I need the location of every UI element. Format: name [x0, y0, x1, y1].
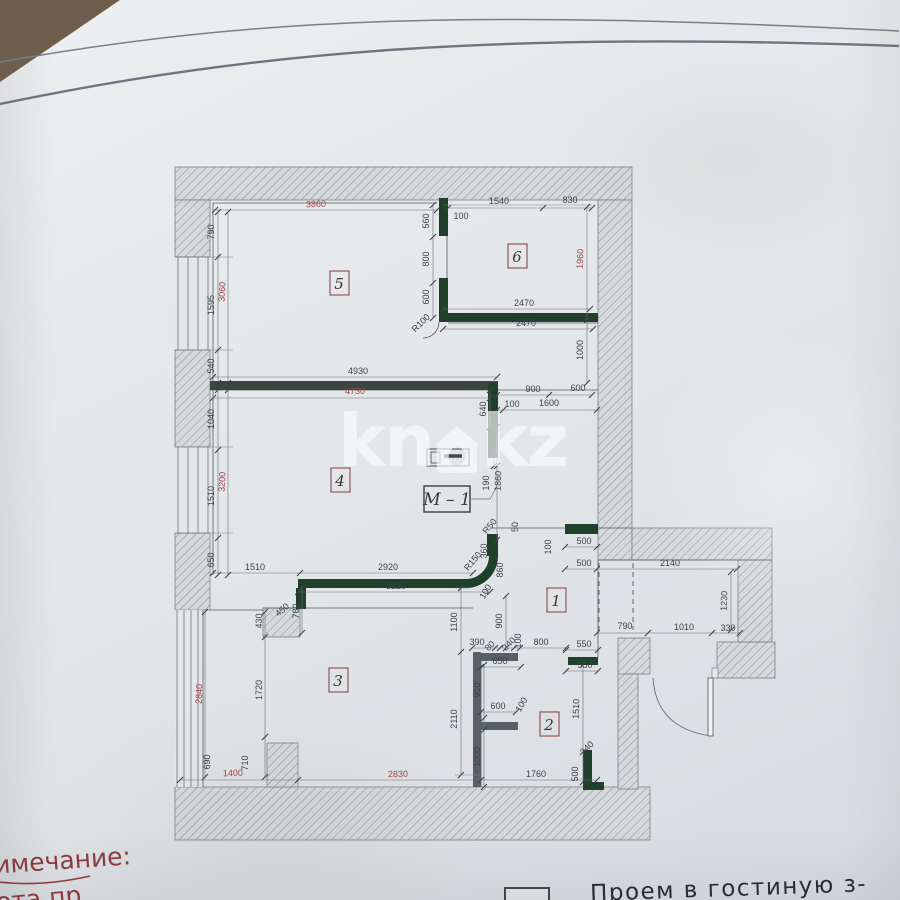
dim-label: 2470 [516, 318, 536, 328]
dim-label: 900 [494, 613, 504, 628]
wall [618, 638, 650, 674]
legend-swatch-box [504, 887, 550, 900]
dim-label: 430 [254, 613, 264, 628]
dim-label: 4730 [345, 386, 365, 396]
wall [618, 674, 638, 789]
dim-label: 50 [510, 522, 520, 532]
dim-label: R50 [481, 517, 499, 536]
dim-label: 600 [570, 383, 585, 393]
wall-corner [583, 750, 604, 790]
dim-label: 800 [421, 251, 431, 266]
dim-label: 690 [202, 754, 212, 769]
dim-label: 1400 [223, 768, 243, 779]
dim-label: 1010 [674, 622, 694, 632]
dim-label: 190 [481, 475, 491, 490]
dim-label: 100 [543, 539, 553, 554]
dim-label: 1540 [489, 196, 509, 206]
wall [175, 787, 650, 840]
dim-label: 2110 [449, 709, 459, 728]
dim-label: 100 [477, 582, 493, 600]
dim-label: 100 [453, 211, 468, 221]
dim-label: 600 [421, 289, 431, 304]
wall [175, 200, 210, 257]
dim-label: 1100 [449, 612, 459, 631]
table-corner [0, 0, 120, 82]
dim-label: 650 [206, 552, 216, 567]
room-number: 2 [543, 716, 554, 734]
dim-label: 80 [483, 639, 497, 653]
opening-dashed-lines [599, 563, 633, 630]
dim-label: 500 [576, 558, 591, 568]
room-number: 3 [333, 672, 343, 690]
dim-label: 1000 [472, 747, 482, 767]
dim-label: 790 [617, 621, 632, 631]
dim-label: 600 [490, 701, 505, 711]
room-number-box: 1 [547, 588, 566, 612]
wall [175, 350, 210, 447]
window [175, 257, 210, 350]
dim-label: 830 [562, 195, 577, 205]
dim-label: 330 [720, 623, 735, 633]
dim-label: 2470 [514, 298, 534, 308]
room-number: 6 [512, 248, 522, 266]
room-number-box: 2 [540, 712, 559, 736]
room-number: 5 [334, 275, 344, 293]
dim-label: R100 [410, 312, 432, 334]
sheet-frame-line [0, 41, 899, 104]
dim-label: 860 [495, 562, 505, 577]
dim-label: 1720 [254, 680, 264, 700]
dim-label: 800 [533, 637, 548, 647]
dim-label: 640 [478, 401, 488, 416]
dim-label: 3200 [216, 472, 227, 493]
wall [717, 642, 775, 678]
dim-label: 540 [206, 358, 216, 373]
dim-label: 2140 [660, 558, 680, 568]
wall [598, 200, 632, 560]
room-number-box: 4 [331, 468, 350, 492]
dim-label: 100 [513, 633, 523, 648]
dimension-labels: 38607901595306054049304730560100800600R1… [194, 195, 736, 782]
m1-label: М – 1 [422, 490, 471, 510]
wall [175, 533, 210, 610]
wall-pier [267, 743, 298, 787]
dim-label: 780 [291, 603, 301, 618]
dim-label: 650 [492, 656, 507, 666]
dim-label: 550 [576, 639, 591, 649]
wall-stub [565, 524, 598, 534]
dim-label: 1760 [526, 769, 546, 779]
entrance-door [653, 678, 713, 736]
door-swing-arc [653, 678, 711, 736]
dim-label: 550 [577, 660, 592, 670]
dim-label: 1510 [245, 562, 265, 572]
m1-fixture [427, 449, 469, 466]
sheet-frame-line [0, 19, 899, 62]
dim-label: 910 [472, 682, 482, 697]
room-number: 4 [334, 472, 345, 490]
dim-label: 2920 [378, 562, 398, 572]
dim-label: 500 [570, 766, 580, 781]
dim-label: 3060 [216, 282, 227, 303]
room-number-box: 5 [330, 271, 349, 295]
room-number: 1 [551, 592, 561, 610]
wall-partition [439, 278, 448, 322]
dim-label: 1510 [206, 486, 216, 506]
dim-label: 1230 [719, 591, 730, 611]
room-outlines [203, 200, 772, 787]
dim-label: 1510 [571, 699, 582, 719]
dim-label: 4930 [348, 366, 368, 376]
dim-label: 3860 [306, 199, 326, 210]
dim-label: 1000 [575, 340, 585, 360]
dim-label: 500 [576, 536, 591, 546]
wall-stub [481, 722, 518, 730]
dim-label: 1960 [575, 249, 586, 269]
walls-green [210, 198, 604, 790]
dim-label: 1595 [206, 295, 216, 315]
window [175, 447, 210, 533]
floorplan-drawing: М – 1 3860790159530605404930473056010080… [0, 0, 900, 900]
wall [632, 528, 772, 560]
wall-partition [439, 198, 448, 236]
dim-label: 2830 [388, 769, 408, 779]
dim-label: 1600 [539, 398, 559, 408]
dim-label: 560 [421, 213, 431, 228]
dim-label: 2840 [194, 684, 205, 704]
photo-of-floorplan-sheet: М – 1 3860790159530605404930473056010080… [0, 0, 900, 900]
dim-label: 790 [206, 224, 216, 239]
door-jamb-notch [712, 668, 718, 678]
dim-label: 1860 [493, 471, 504, 491]
dim-label: 1040 [206, 409, 216, 429]
wall [738, 560, 772, 642]
dim-label: 3220 [386, 581, 406, 591]
dim-label: 100 [513, 695, 529, 713]
room-number-box: 6 [508, 244, 527, 268]
dim-label: 100 [504, 399, 519, 409]
room-number-box: 3 [329, 668, 348, 692]
door-leaf [708, 678, 713, 736]
dim-label: 900 [525, 384, 540, 394]
sheet-background [0, 0, 899, 104]
